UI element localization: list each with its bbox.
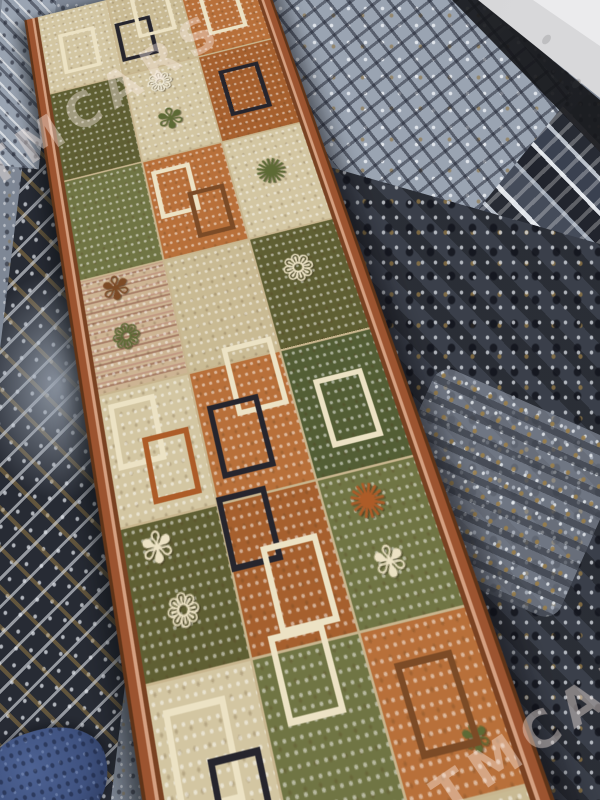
square-frame-motif [142,427,202,505]
flower-medallion-motif: ❁ [162,585,206,641]
flower-medallion-motif: ✾ [99,270,134,309]
flower-medallion-motif: ✾ [154,102,188,136]
square-frame-motif [394,650,483,760]
flower-medallion-motif: ✾ [367,537,413,588]
square-frame-motif [267,622,347,728]
flower-medallion-motif: ✺ [343,474,395,531]
square-frame-motif [129,0,177,38]
square-frame-motif [218,62,272,117]
square-frame-motif [312,367,383,448]
photo-scene: ❁✾✺✾❁❁✾❁✺✾✾✾❁❁✱✱✺✾ TMCARS TMCARS [0,0,600,800]
square-frame-motif [259,533,340,637]
flower-medallion-motif: ❁ [109,317,145,358]
flower-medallion-motif: ❁ [144,66,177,98]
square-frame-motif [198,0,248,35]
flower-medallion-motif: ❁ [277,247,320,291]
square-frame-motif [187,184,236,238]
square-frame-motif [58,26,102,75]
flower-medallion-motif: ✾ [137,524,179,576]
flower-medallion-motif: ✺ [251,151,293,192]
